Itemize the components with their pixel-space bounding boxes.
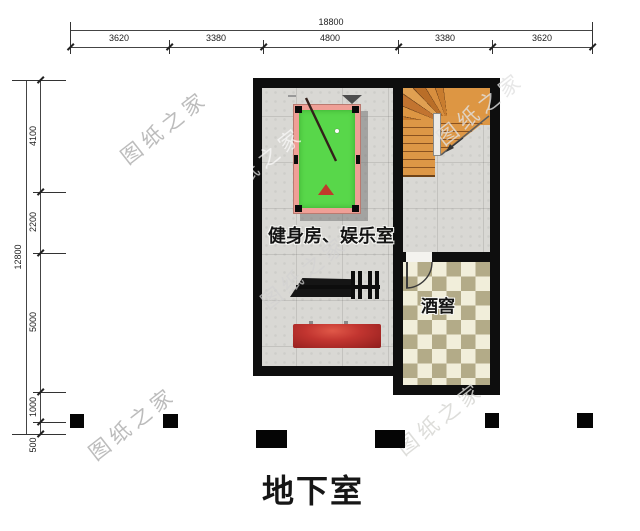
floor-plan-page: 18800 3620 3380 4800 3380 3620 12800 410… bbox=[0, 0, 640, 531]
top-dim-seg-label: 3620 bbox=[101, 33, 137, 43]
column-marker bbox=[577, 413, 593, 428]
top-dim-extension-right bbox=[592, 22, 593, 54]
column-marker bbox=[485, 413, 499, 428]
pool-pocket bbox=[352, 106, 359, 113]
left-dim-seg-label: 5000 bbox=[28, 304, 38, 340]
room-label-wine-cellar: 酒窖 bbox=[421, 292, 455, 317]
top-dim-seg-label: 4800 bbox=[312, 33, 348, 43]
pool-pocket bbox=[352, 205, 359, 212]
pool-table bbox=[293, 104, 361, 214]
pool-side-pocket bbox=[294, 155, 298, 164]
barbell-plate bbox=[375, 271, 379, 299]
left-dim-total-line bbox=[26, 80, 27, 434]
top-dim-segment-line bbox=[70, 47, 592, 48]
column-marker bbox=[375, 430, 405, 448]
column-marker bbox=[70, 414, 84, 428]
left-dim-total-label: 12800 bbox=[13, 238, 23, 276]
left-dim-segment-line bbox=[40, 80, 41, 434]
wall-right bbox=[490, 78, 500, 395]
left-dim-seg-label: 2200 bbox=[28, 204, 38, 240]
barbell-plate bbox=[358, 271, 362, 299]
pool-pocket bbox=[295, 106, 302, 113]
top-dim-seg-label: 3380 bbox=[198, 33, 234, 43]
pool-side-pocket bbox=[356, 155, 360, 164]
left-dim-seg-label: 4100 bbox=[28, 118, 38, 154]
top-dim-extension-left bbox=[70, 22, 71, 54]
top-dim-seg-label: 3380 bbox=[427, 33, 463, 43]
pool-pocket bbox=[295, 205, 302, 212]
top-dim-seg-label: 3620 bbox=[524, 33, 560, 43]
left-dim-seg-label: 500 bbox=[28, 427, 38, 463]
top-dim-total-line bbox=[70, 30, 592, 31]
column-marker bbox=[163, 414, 178, 428]
left-dim-seg-label: 1000 bbox=[28, 389, 38, 425]
exercise-mat bbox=[293, 324, 381, 348]
barbell-plate bbox=[351, 271, 355, 299]
wall-gym-bottom bbox=[253, 366, 403, 376]
wall-top bbox=[253, 78, 500, 88]
cue-ball bbox=[335, 129, 339, 133]
mat-handle bbox=[344, 321, 348, 324]
watermark: 图纸之家 bbox=[114, 83, 214, 171]
wall-left bbox=[253, 78, 262, 376]
top-dim-total-label: 18800 bbox=[301, 17, 361, 27]
page-title: 地下室 bbox=[233, 466, 393, 512]
column-marker bbox=[256, 430, 287, 448]
barbell-plate bbox=[368, 271, 372, 299]
tick-marker bbox=[288, 95, 296, 97]
wall-interior-vertical bbox=[393, 78, 403, 395]
wine-cellar-floor bbox=[403, 262, 490, 385]
mat-handle bbox=[309, 321, 313, 324]
door-opening bbox=[406, 252, 432, 262]
